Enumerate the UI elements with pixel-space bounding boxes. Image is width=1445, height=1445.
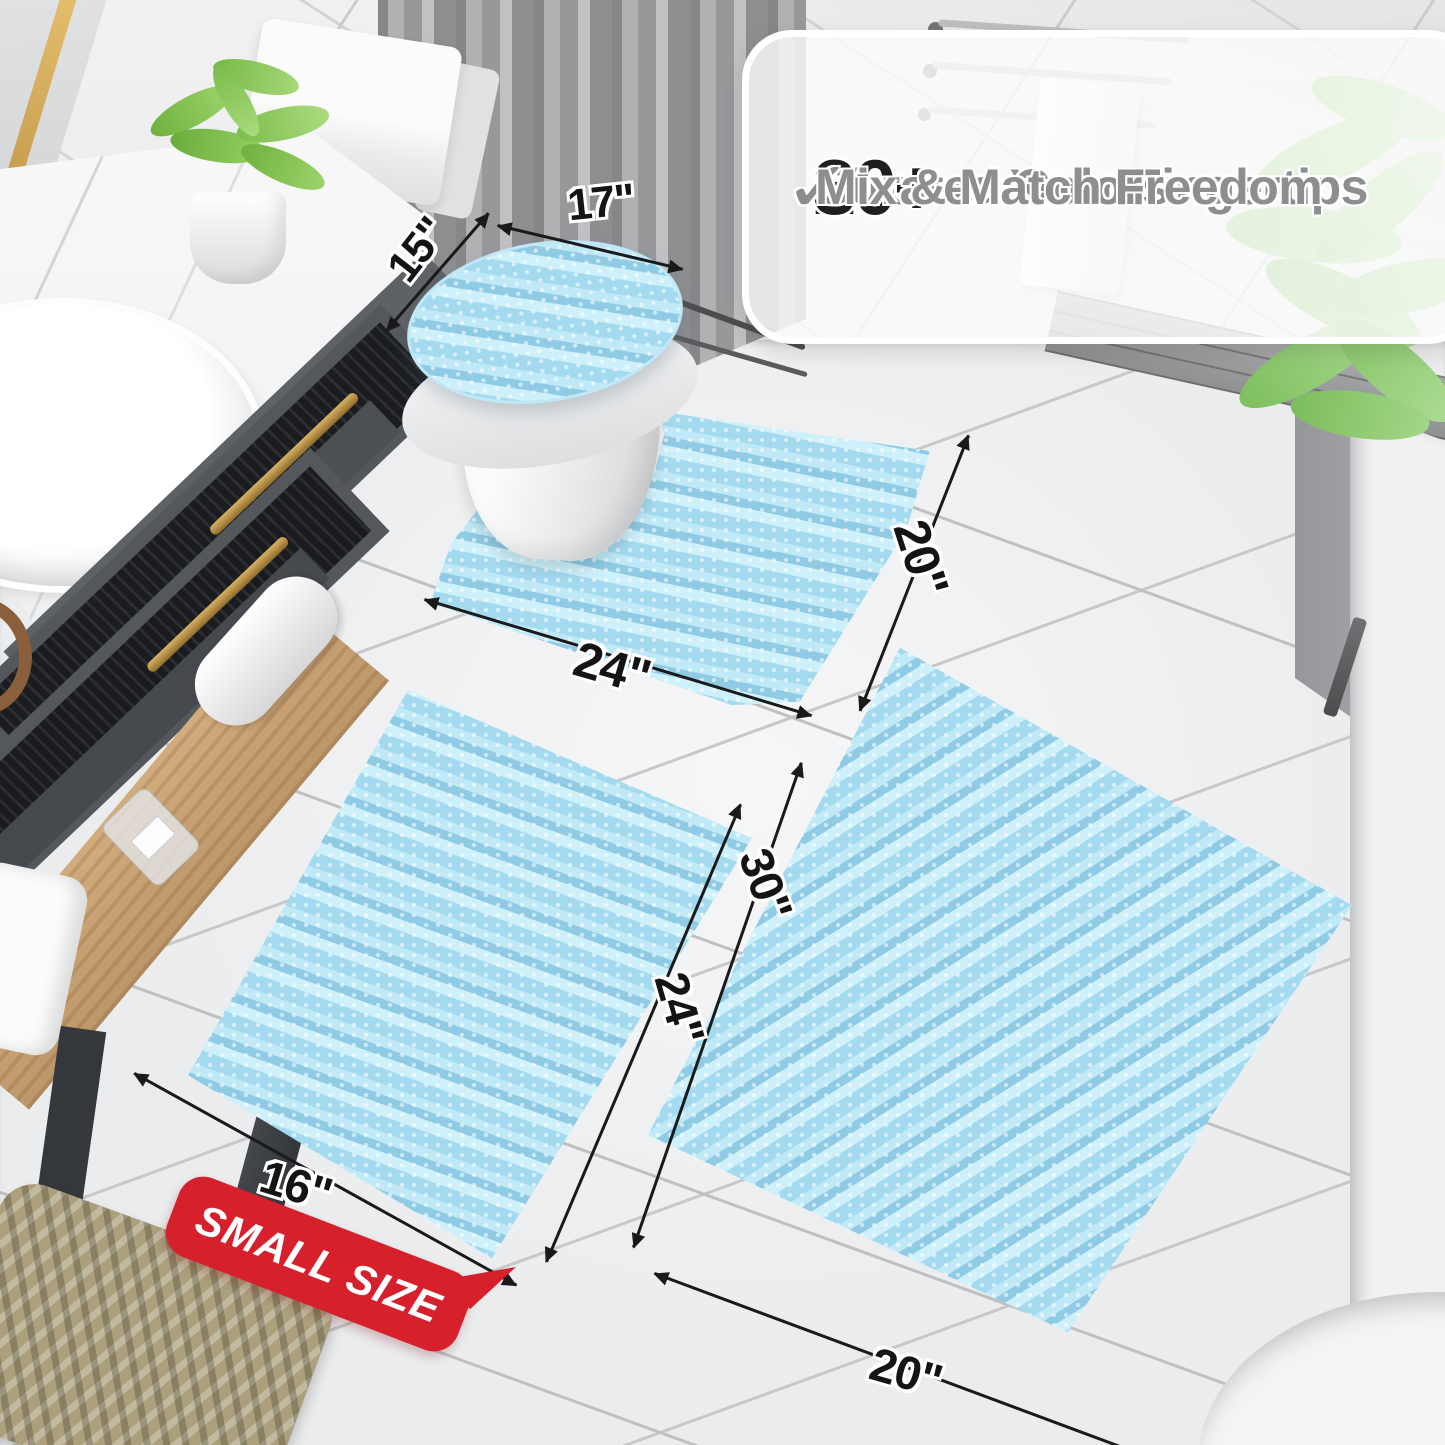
- dimension-label-lid-width: 17": [565, 175, 637, 232]
- feature-label: Mix & Match Freedom: [815, 162, 1322, 212]
- product-photo: 15" 17" 24" 20" 16" 24" 30" 20" ✓ 20+ Si…: [0, 0, 1445, 1445]
- feature-panel: ✓ 20+ Sizes at Your Fingertips ✓ 30+ Cur…: [742, 30, 1445, 344]
- bottle-label: [130, 815, 175, 860]
- bathtub-panel: [1350, 406, 1445, 1445]
- plant-pot: [190, 192, 286, 284]
